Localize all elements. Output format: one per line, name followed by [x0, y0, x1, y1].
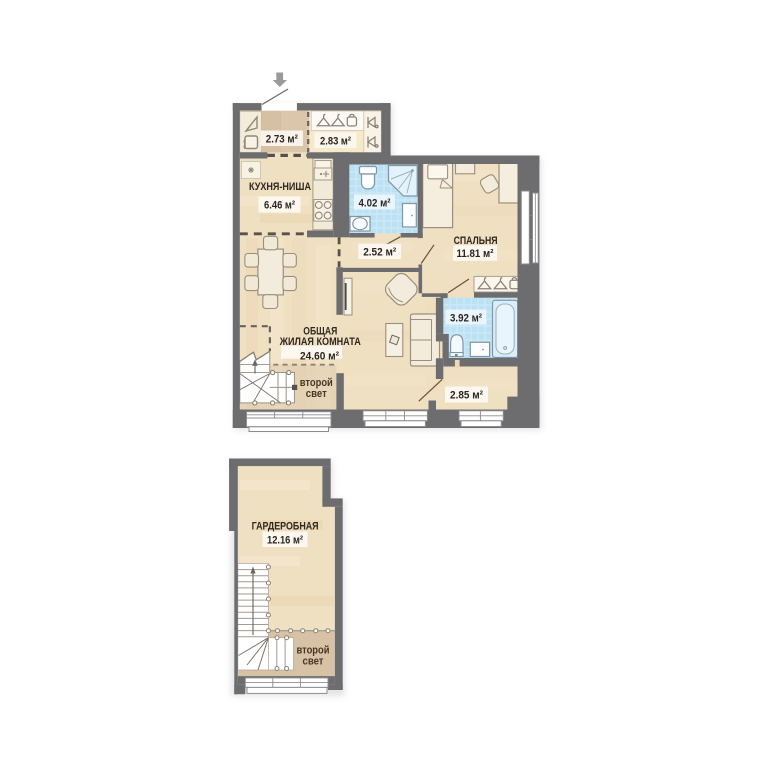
svg-text:свет: свет [303, 656, 324, 668]
svg-text:12.16 м²: 12.16 м² [267, 534, 303, 546]
svg-text:второй: второй [297, 645, 330, 657]
svg-text:2.83 м²: 2.83 м² [320, 135, 351, 147]
svg-text:свет: свет [306, 388, 327, 400]
svg-text:ГАРДЕРОБНАЯ: ГАРДЕРОБНАЯ [252, 521, 319, 533]
svg-text:2.85 м²: 2.85 м² [450, 390, 483, 402]
svg-text:2.52 м²: 2.52 м² [363, 246, 396, 258]
svg-text:24.60 м²: 24.60 м² [300, 351, 339, 363]
svg-text:6.46 м²: 6.46 м² [264, 200, 295, 212]
svg-text:4.02 м²: 4.02 м² [359, 197, 391, 209]
svg-text:11.81 м²: 11.81 м² [457, 248, 494, 260]
svg-text:КУХНЯ-НИША: КУХНЯ-НИША [249, 181, 311, 193]
svg-text:СПАЛЬНЯ: СПАЛЬНЯ [454, 235, 498, 247]
svg-text:2.73 м²: 2.73 м² [266, 133, 298, 145]
svg-text:3.92 м²: 3.92 м² [450, 312, 482, 324]
